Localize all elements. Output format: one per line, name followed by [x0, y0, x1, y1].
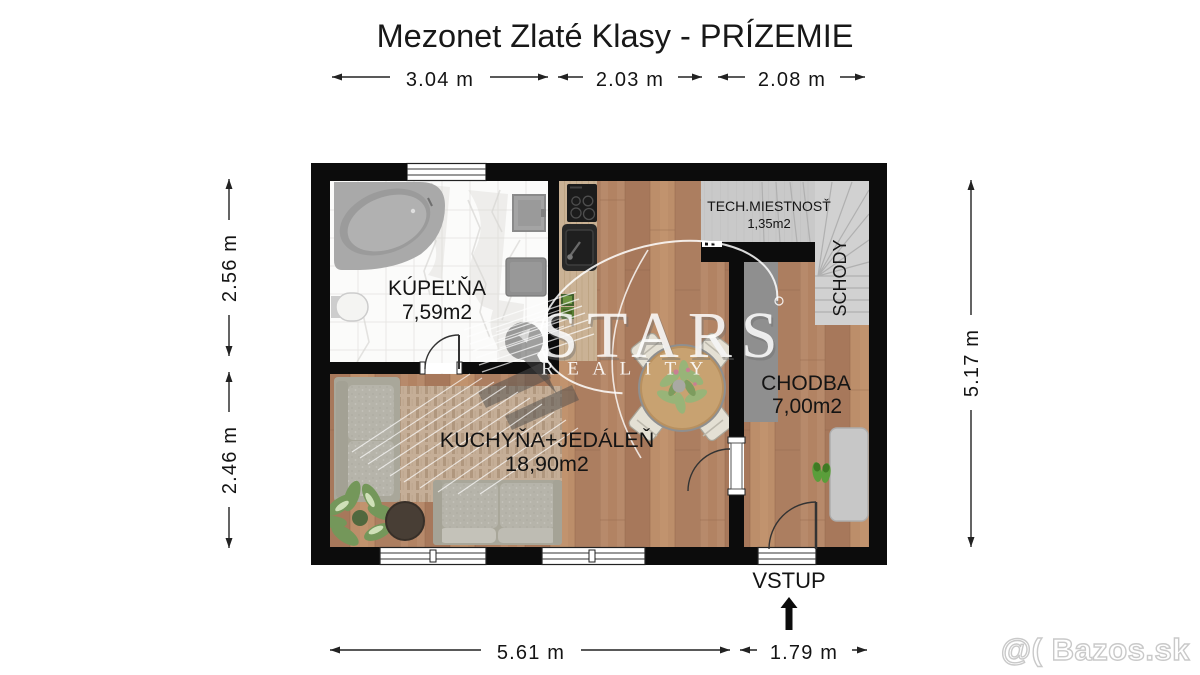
svg-text:@( Bazos.sk: @( Bazos.sk [1001, 632, 1190, 667]
svg-text:KÚPEĽŇA: KÚPEĽŇA [388, 277, 486, 300]
svg-text:2.03 m: 2.03 m [596, 69, 664, 91]
svg-text:TECH.MIESTNOSŤ: TECH.MIESTNOSŤ [707, 198, 831, 214]
svg-text:2.08 m: 2.08 m [758, 69, 826, 91]
svg-text:3.04 m: 3.04 m [406, 69, 474, 91]
svg-text:KUCHYŇA+JEDÁLEŇ: KUCHYŇA+JEDÁLEŇ [440, 427, 654, 452]
svg-text:5.61 m: 5.61 m [497, 642, 565, 664]
svg-text:1,35m2: 1,35m2 [747, 216, 790, 231]
svg-text:CHODBA: CHODBA [761, 372, 851, 395]
svg-text:REALITY: REALITY [541, 359, 717, 380]
svg-text:2.56 m: 2.56 m [219, 234, 241, 302]
svg-text:7,59m2: 7,59m2 [402, 301, 472, 324]
svg-text:7,00m2: 7,00m2 [772, 395, 842, 418]
svg-text:VSTUP: VSTUP [752, 568, 825, 593]
svg-text:1.79 m: 1.79 m [770, 642, 838, 664]
svg-text:Mezonet Zlaté Klasy - PRÍZEMIE: Mezonet Zlaté Klasy - PRÍZEMIE [377, 18, 854, 54]
svg-text:2.46 m: 2.46 m [219, 426, 241, 494]
svg-text:18,90m2: 18,90m2 [505, 452, 589, 476]
svg-text:5.17 m: 5.17 m [961, 329, 983, 397]
svg-text:SCHODY: SCHODY [830, 239, 850, 316]
